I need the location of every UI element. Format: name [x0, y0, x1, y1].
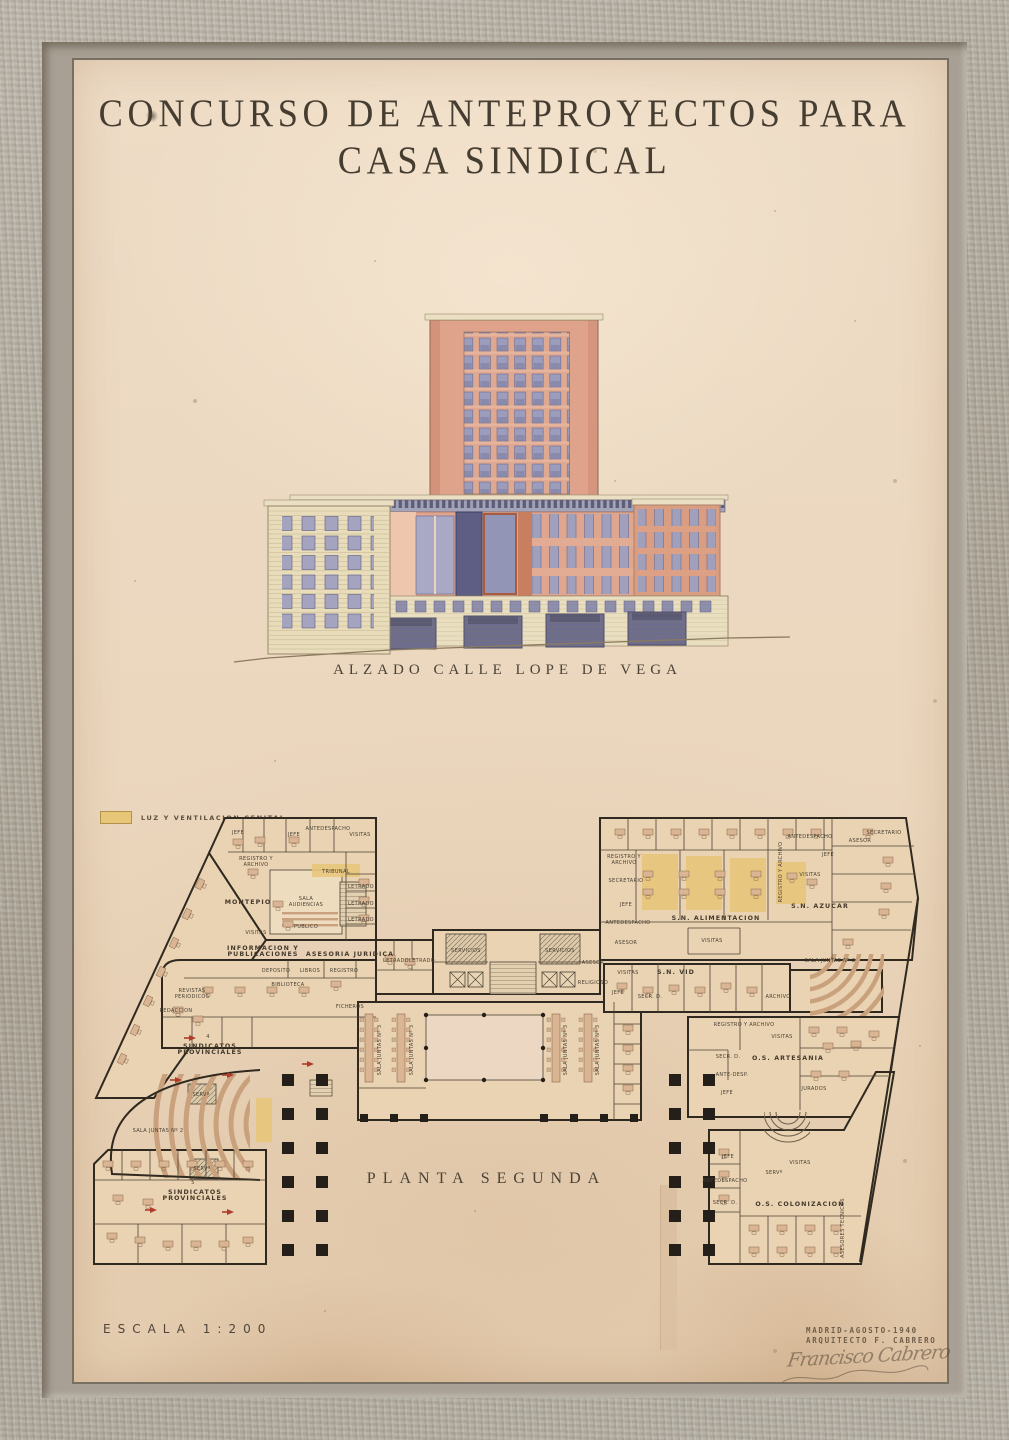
svg-text:SINDICATOSPROVINCIALES: SINDICATOSPROVINCIALES	[177, 1043, 242, 1056]
plan-caption: PLANTA SEGUNDA	[0, 1170, 991, 1188]
svg-text:SALA JUNTAS Nº 3: SALA JUNTAS Nº 3	[595, 1025, 601, 1076]
svg-text:JEFE: JEFE	[720, 1090, 733, 1096]
svg-text:ANTE-DESP.: ANTE-DESP.	[716, 1072, 749, 1078]
svg-text:REGISTRO YARCHIVO: REGISTRO YARCHIVO	[239, 856, 273, 868]
svg-text:VISITAS: VISITAS	[771, 1034, 792, 1040]
red-pilaster	[518, 512, 532, 596]
title-line-1: CONCURSO DE ANTEPROYECTOS PARA	[35, 90, 973, 137]
svg-text:VISITAS: VISITAS	[701, 938, 722, 944]
svg-text:JURADOS: JURADOS	[800, 1086, 826, 1092]
svg-text:REGISTRO: REGISTRO	[330, 968, 358, 974]
svg-text:VISITAS: VISITAS	[349, 832, 370, 838]
svg-text:REGISTRO Y ARCHIVO: REGISTRO Y ARCHIVO	[714, 1022, 775, 1028]
right-block	[634, 505, 720, 596]
svg-text:JEFE: JEFE	[231, 830, 244, 836]
svg-text:FICHEROS: FICHEROS	[336, 1004, 364, 1010]
svg-text:LETRADO: LETRADO	[348, 884, 374, 890]
svg-text:SECR. D.: SECR. D.	[713, 1200, 738, 1206]
svg-text:LETRADO: LETRADO	[383, 958, 409, 964]
tower-shade-left	[430, 320, 440, 502]
ground-window-row	[396, 601, 711, 612]
svg-text:LIBROS: LIBROS	[300, 968, 320, 974]
svg-text:JEFE: JEFE	[611, 990, 624, 996]
svg-text:S.N. AZUCAR: S.N. AZUCAR	[791, 903, 849, 910]
svg-text:JEFE: JEFE	[619, 902, 632, 908]
svg-text:ASESORIA JURIDICA: ASESORIA JURIDICA	[306, 951, 394, 958]
tower-cornice	[425, 314, 603, 320]
svg-text:VISITAS: VISITAS	[789, 1160, 810, 1166]
svg-text:ARCHIVO: ARCHIVO	[765, 994, 790, 1000]
svg-text:ASESOR: ASESOR	[582, 960, 605, 966]
svg-text:JEFE: JEFE	[821, 852, 834, 858]
svg-text:SALA JUNTAS Nº 3: SALA JUNTAS Nº 3	[409, 1025, 415, 1076]
entrance-glazing	[484, 514, 516, 594]
svg-text:RELIGIOSO: RELIGIOSO	[578, 980, 608, 986]
svg-text:ASESORES TECNICOS: ASESORES TECNICOS	[840, 1198, 846, 1258]
svg-text:REDACCION: REDACCION	[159, 1008, 192, 1014]
svg-text:LETRADO: LETRADO	[409, 958, 435, 964]
svg-text:LETRADO: LETRADO	[348, 901, 374, 907]
credits-line-1: MADRID-AGOSTO-1940	[806, 1326, 937, 1336]
pale-pilaster	[390, 512, 416, 596]
right-block-cornice	[632, 499, 724, 505]
svg-text:VISITAS: VISITAS	[245, 930, 266, 936]
center-bays	[532, 514, 634, 594]
svg-text:S.N. ALIMENTACION: S.N. ALIMENTACION	[672, 915, 761, 922]
svg-text:VISITAS: VISITAS	[799, 872, 820, 878]
svg-text:SALA JUNTAS Nº 2: SALA JUNTAS Nº 2	[805, 958, 856, 964]
scale-label: ESCALA 1:200	[103, 1322, 272, 1336]
framed-architectural-drawing: { "artwork": { "title_line1": "CONCURSO …	[0, 0, 1009, 1440]
svg-text:BIBLIOTECA: BIBLIOTECA	[271, 982, 304, 988]
left-block-windows	[282, 514, 374, 632]
svg-text:SECR. D.: SECR. D.	[716, 1054, 741, 1060]
svg-text:SECRETARIO: SECRETARIO	[609, 878, 644, 884]
svg-text:ANTEDESPACHO: ANTEDESPACHO	[606, 920, 651, 926]
svg-text:SERVICIOS: SERVICIOS	[545, 948, 575, 954]
svg-text:SALA JUNTAS Nº 2: SALA JUNTAS Nº 2	[133, 1128, 184, 1134]
central-light-court	[426, 1015, 543, 1080]
svg-text:DEPOSITO: DEPOSITO	[262, 968, 290, 974]
svg-text:ASESOR: ASESOR	[615, 940, 638, 946]
tower-shade-right	[588, 320, 598, 502]
svg-text:PUBLICO: PUBLICO	[294, 924, 318, 930]
svg-text:SINDICATOSPROVINCIALES: SINDICATOSPROVINCIALES	[162, 1189, 227, 1202]
svg-text:REGISTRO YARCHIVO: REGISTRO YARCHIVO	[607, 854, 641, 866]
svg-text:MONTEPIO: MONTEPIO	[225, 899, 272, 906]
floor-plan-drawing: JEFEJEFEANTEDESPACHOVISITASREGISTRO YARC…	[88, 812, 923, 1272]
svg-text:REGISTRO Y ARCHIVO: REGISTRO Y ARCHIVO	[778, 842, 784, 903]
svg-text:JEFE: JEFE	[721, 1154, 734, 1160]
svg-text:TRIBUNAL: TRIBUNAL	[321, 869, 350, 875]
svg-text:SALA JUNTAS Nº 3: SALA JUNTAS Nº 3	[563, 1025, 569, 1076]
svg-text:SECRETARIO: SECRETARIO	[867, 830, 902, 836]
title-line-2: CASA SINDICAL	[35, 137, 973, 184]
left-block-cornice	[264, 500, 394, 506]
svg-text:S.N. VID: S.N. VID	[657, 969, 695, 976]
svg-text:SERVº: SERVº	[192, 1092, 209, 1098]
svg-text:4: 4	[206, 1034, 210, 1040]
svg-text:REVISTASPERIODICOS: REVISTASPERIODICOS	[175, 988, 209, 1000]
svg-text:INFORMACION YPUBLICACIONES: INFORMACION YPUBLICACIONES	[227, 945, 299, 958]
elevation-caption: ALZADO CALLE LOPE DE VEGA	[3, 662, 1009, 679]
building-elevation-drawing	[230, 300, 800, 665]
svg-text:SECR. D.: SECR. D.	[638, 994, 663, 1000]
svg-text:SERVICIOS: SERVICIOS	[451, 948, 481, 954]
architect-signature: Francisco Cabrero	[779, 1340, 931, 1392]
svg-text:JEFE: JEFE	[287, 832, 300, 838]
svg-text:ASESOR: ASESOR	[849, 838, 872, 844]
svg-text:LETRADO: LETRADO	[348, 917, 374, 923]
tower-window-grid	[464, 332, 570, 494]
svg-text:O.S. ARTESANIA: O.S. ARTESANIA	[752, 1055, 824, 1062]
dark-glass-strip	[456, 512, 482, 596]
svg-text:VISITAS: VISITAS	[617, 970, 638, 976]
svg-text:ANTEDESPACHO: ANTEDESPACHO	[306, 826, 351, 832]
svg-text:O.S. COLONIZACION: O.S. COLONIZACION	[755, 1201, 844, 1208]
svg-text:ANTEDESPACHO: ANTEDESPACHO	[788, 834, 833, 840]
poster-title: CONCURSO DE ANTEPROYECTOS PARA CASA SIND…	[35, 90, 973, 184]
svg-text:SALA JUNTAS Nº 3: SALA JUNTAS Nº 3	[377, 1025, 383, 1076]
